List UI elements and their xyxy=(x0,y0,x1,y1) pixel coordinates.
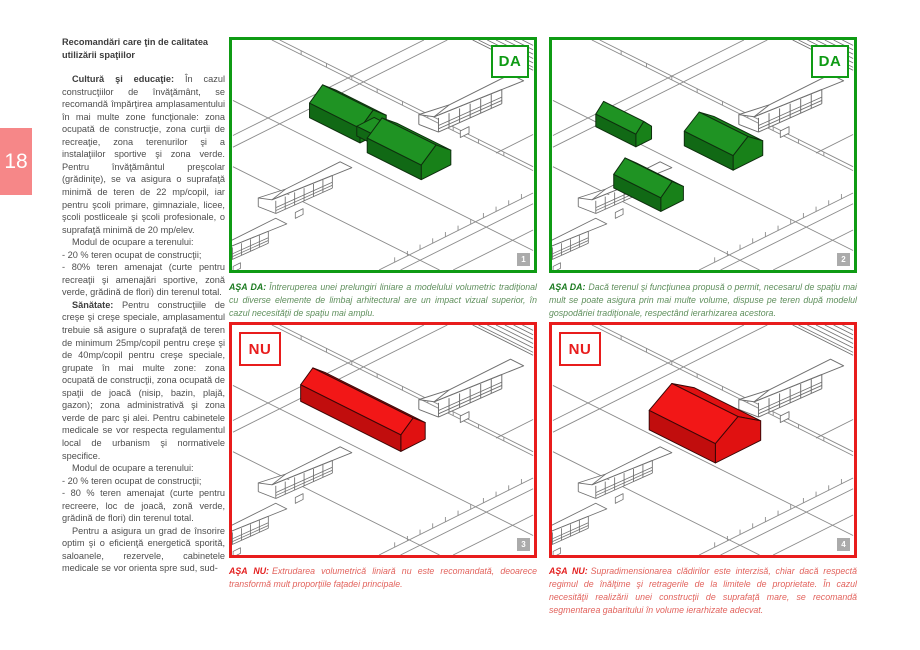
illustration-panel-nu-3: NU 3 xyxy=(229,322,537,558)
panel-number-badge: 1 xyxy=(517,253,530,266)
paragraph: Sănătate: Pentru construcţiile de creşe … xyxy=(62,299,225,462)
nu-label: NU xyxy=(239,332,281,366)
list-item: - 80% teren amenajat (curte pentru recre… xyxy=(62,261,225,299)
document-page: 18 Recomandări care ţin de calitatea uti… xyxy=(0,0,920,650)
list-item: - 20 % teren ocupat de construcţii; xyxy=(62,475,225,488)
left-text-column: Recomandări care ţin de calitatea utiliz… xyxy=(62,36,225,616)
paragraph: Cultură şi educaţie: În cazul construcţi… xyxy=(62,73,225,236)
paragraph: Modul de ocupare a terenului: xyxy=(62,236,225,249)
nu-label: NU xyxy=(559,332,601,366)
caption-panel-3: AŞA NU:Extrudarea volumetrică liniară nu… xyxy=(229,565,537,591)
isometric-illustration xyxy=(552,40,854,270)
caption-panel-4: AŞA NU:Supradimensionarea clădirilor est… xyxy=(549,565,857,617)
panel-number-badge: 2 xyxy=(837,253,850,266)
page-number-badge: 18 xyxy=(0,128,32,195)
paragraph: Modul de ocupare a terenului: xyxy=(62,462,225,475)
da-label: DA xyxy=(811,45,849,78)
page-number: 18 xyxy=(4,150,27,174)
panel-number-badge: 3 xyxy=(517,538,530,551)
caption-panel-2: AŞA DA:Dacă terenul şi funcţiunea propus… xyxy=(549,281,857,320)
paragraph: Pentru a asigura un grad de însorire opt… xyxy=(62,525,225,575)
list-item: - 20 % teren ocupat de construcţii; xyxy=(62,249,225,262)
caption-panel-1: AŞA DA:Întreruperea unei prelungiri lini… xyxy=(229,281,537,320)
isometric-illustration xyxy=(232,40,534,270)
da-label: DA xyxy=(491,45,529,78)
panel-number-badge: 4 xyxy=(837,538,850,551)
illustration-panel-da-1: DA 1 xyxy=(229,37,537,273)
illustration-panel-nu-4: NU 4 xyxy=(549,322,857,558)
illustration-panel-da-2: DA 2 xyxy=(549,37,857,273)
list-item: - 80 % teren amenajat (curte pentru recr… xyxy=(62,487,225,525)
section-heading: Recomandări care ţin de calitatea utiliz… xyxy=(62,36,225,61)
